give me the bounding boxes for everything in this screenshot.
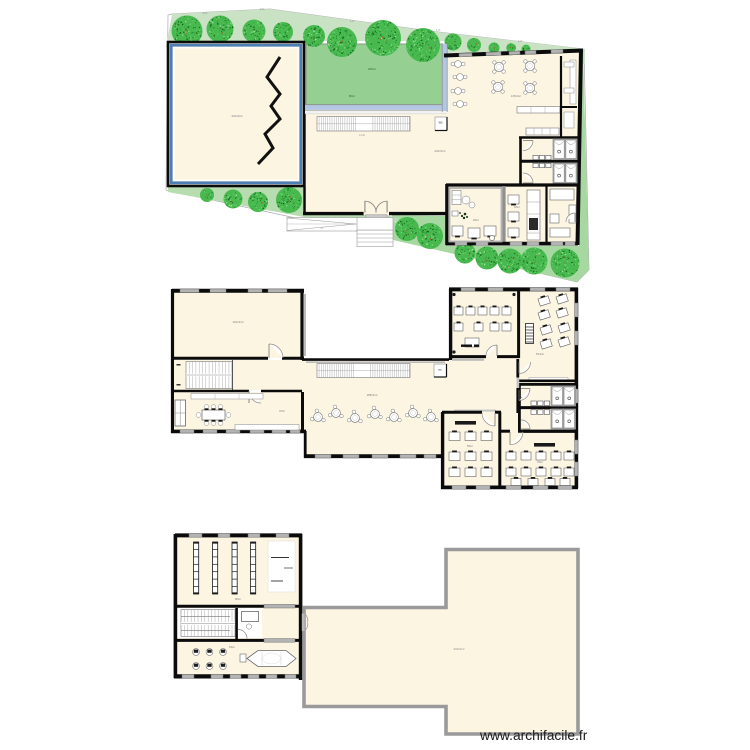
svg-text:96m²: 96m² bbox=[235, 597, 241, 601]
svg-text:63m²: 63m² bbox=[229, 645, 235, 649]
svg-text:wc: wc bbox=[438, 368, 442, 372]
svg-text:47m²: 47m² bbox=[279, 409, 285, 413]
svg-text:9,20: 9,20 bbox=[350, 21, 355, 23]
svg-text:135,9m²: 135,9m² bbox=[511, 94, 521, 98]
svg-text:103,9m²: 103,9m² bbox=[232, 320, 243, 324]
svg-text:8,00: 8,00 bbox=[203, 13, 208, 15]
svg-text:250m²: 250m² bbox=[368, 67, 376, 71]
svg-text:18m²: 18m² bbox=[514, 206, 520, 209]
svg-text:230,6m²: 230,6m² bbox=[434, 149, 445, 153]
svg-text:53,9m²: 53,9m² bbox=[536, 352, 544, 356]
svg-text:430,6m²: 430,6m² bbox=[453, 647, 464, 651]
svg-text:5%: 5% bbox=[320, 228, 323, 230]
svg-text:29m²: 29m² bbox=[473, 218, 479, 222]
svg-text:wc: wc bbox=[439, 121, 443, 125]
svg-text:55m²: 55m² bbox=[467, 444, 473, 448]
svg-text:www.archifacile.fr: www.archifacile.fr bbox=[479, 728, 588, 743]
svg-text:80m²: 80m² bbox=[349, 94, 355, 98]
svg-text:4,00: 4,00 bbox=[518, 41, 523, 43]
svg-text:5,10: 5,10 bbox=[436, 30, 441, 32]
svg-text:6,50: 6,50 bbox=[260, 9, 265, 11]
svg-text:14,60: 14,60 bbox=[359, 134, 366, 137]
svg-text:233,9m²: 233,9m² bbox=[231, 114, 242, 118]
svg-text:188,9m²: 188,9m² bbox=[366, 393, 377, 397]
svg-text:75m²: 75m² bbox=[537, 460, 543, 464]
